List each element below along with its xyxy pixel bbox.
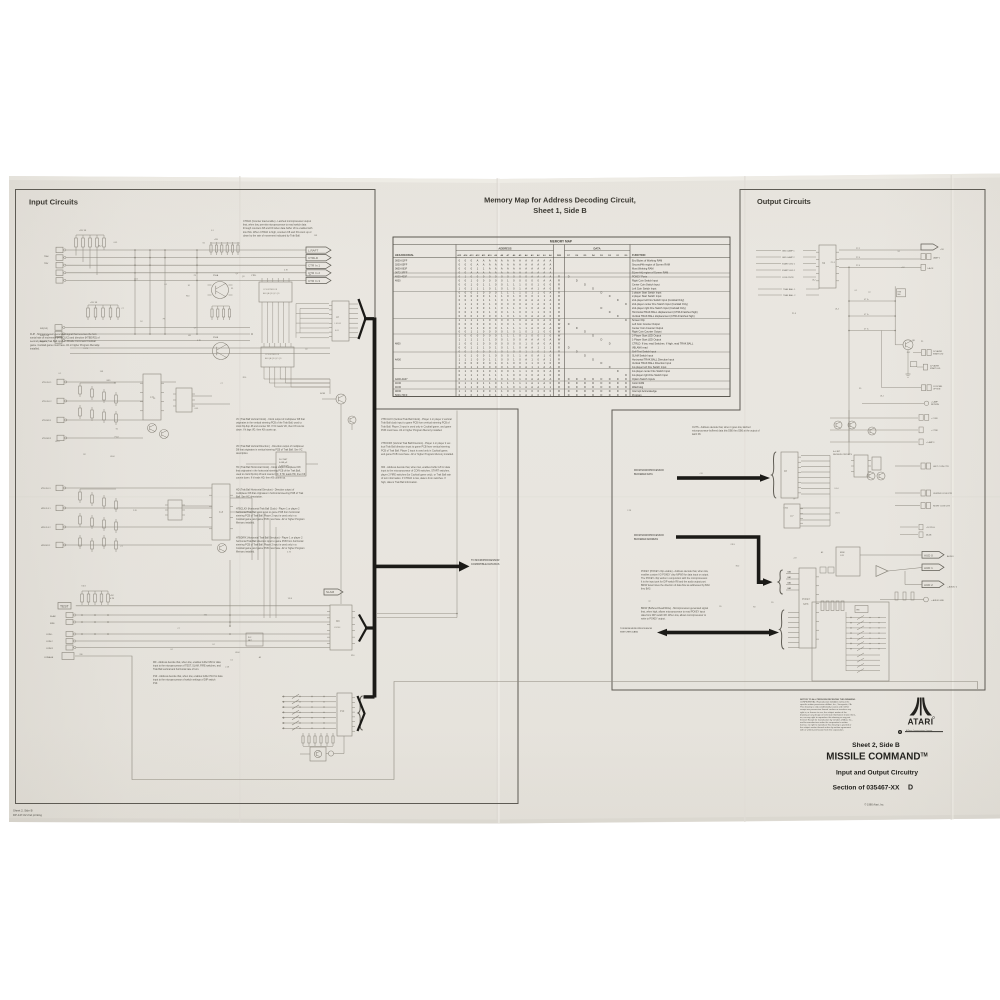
svg-text:D: D <box>609 295 611 298</box>
svg-text:D: D <box>625 382 627 385</box>
svg-text:Interrupt Acknowledge: Interrupt Acknowledge <box>632 390 657 393</box>
svg-text:1-player Start Switch Input: 1-player Start Switch Input <box>632 291 662 294</box>
svg-text:COUNTER K9: COUNTER K9 <box>265 354 280 356</box>
svg-text:P10B: P10B <box>213 337 219 339</box>
svg-text:4A00-4A07: 4A00-4A07 <box>395 378 408 381</box>
svg-text:D: D <box>617 299 619 302</box>
svg-text:4A00: 4A00 <box>395 358 401 361</box>
svg-text:Memory installed.: Memory installed. <box>236 551 255 554</box>
svg-text:D: D <box>592 394 594 397</box>
svg-text:S1: S1 <box>231 288 233 290</box>
svg-text:+5V 1K: +5V 1K <box>90 302 98 304</box>
svg-text:AUD 2: AUD 2 <box>924 583 933 587</box>
svg-text:4D00: 4D00 <box>395 390 402 393</box>
svg-text:0.1: 0.1 <box>59 373 62 375</box>
svg-text:2-Player Start LED Output: 2-Player Start LED Output <box>632 335 661 338</box>
svg-text:D: D <box>625 303 627 306</box>
svg-text:+5V PULL: +5V PULL <box>926 527 936 529</box>
svg-text:2-PLAYER: 2-PLAYER <box>930 365 940 368</box>
svg-text:low ING. When CTRLD is high, c: low ING. When CTRLD is high, counters K8… <box>243 231 312 234</box>
svg-text:on, nor any right to repr: on, nor any right to reproduce this draw… <box>800 716 851 719</box>
svg-text:1st-player right Fire Switch I: 1st-player right Fire Switch Input <box>632 374 668 377</box>
svg-text:R: R <box>558 287 560 290</box>
svg-text:0.1: 0.1 <box>855 290 858 292</box>
svg-text:AUD 1: AUD 1 <box>924 566 933 570</box>
svg-text:D: D <box>617 390 619 393</box>
svg-text:LS244: LS244 <box>334 627 341 629</box>
svg-text:0000-01FF: 0000-01FF <box>395 260 408 263</box>
svg-text:HEXADECIMAL: HEXADECIMAL <box>395 253 414 257</box>
svg-text:Left Coin Switch Input: Left Coin Switch Input <box>632 287 657 290</box>
svg-text:74LS: 74LS <box>288 598 293 600</box>
svg-text:C4: C4 <box>164 284 166 286</box>
svg-text:VTB CLK 1: VTB CLK 1 <box>42 382 51 384</box>
svg-text:R: R <box>558 343 560 346</box>
svg-text:FROM MICROPROCESSOR: FROM MICROPROCESSOR <box>634 535 664 537</box>
svg-text:1-PLAYER: 1-PLAYER <box>933 350 943 353</box>
svg-text:D: D <box>592 378 594 381</box>
svg-text:A3: A3 <box>188 334 190 337</box>
svg-text:down. If it lags VD, then K8 c: down. If it lags VD, then K8 counts up. <box>236 429 277 432</box>
svg-text:R: R <box>558 382 560 385</box>
svg-text:LS74: LS74 <box>835 513 839 515</box>
svg-text:R10: R10 <box>186 295 189 297</box>
svg-text:D: D <box>625 386 627 389</box>
svg-text:J8-2: J8-2 <box>880 395 884 397</box>
svg-text:and game PCB must have -02 or: and game PCB must have -02 or higher Pro… <box>381 453 454 456</box>
svg-text:D: D <box>584 394 586 397</box>
svg-text:CENTER COIN CTR: CENTER COIN CTR <box>933 493 953 495</box>
svg-text:the subject matter thereof: the subject matter thereof unless by wri… <box>800 726 851 729</box>
svg-text:START LED: START LED <box>930 367 941 370</box>
svg-text:zontal rate of movement (HTBCL: zontal rate of movement (HTBCLK2) and di… <box>30 337 100 340</box>
svg-text:VTB CLK 2: VTB CLK 2 <box>42 401 51 403</box>
svg-text:Right Coin Counter Output: Right Coin Counter Output <box>632 331 662 334</box>
svg-text:D: D <box>617 370 619 373</box>
svg-text:P9: P9 <box>194 275 196 277</box>
svg-text:AUDIO: AUDIO <box>947 555 954 558</box>
svg-text:AB QA QB QC QD: AB QA QB QC QD <box>263 292 280 295</box>
svg-text:SLAM: SLAM <box>50 615 56 618</box>
svg-text:LAMP 1: LAMP 1 <box>933 257 941 260</box>
svg-text:Second/4th region of Screen RA: Second/4th region of Screen RAM <box>632 264 670 267</box>
svg-text:Sheet 1, Side B: Sheet 1, Side B <box>533 206 586 215</box>
svg-text:C4: C4 <box>212 644 214 646</box>
svg-text:This drawing is only condi: This drawing is only conditionally issue… <box>800 706 849 709</box>
svg-text:P10A: P10A <box>213 274 219 277</box>
svg-text:PCB must have -02 or higher Pr: PCB must have -02 or higher Program Memo… <box>381 429 443 432</box>
svg-text:GND LAMP 1: GND LAMP 1 <box>782 250 795 253</box>
svg-text:D: D <box>584 354 586 357</box>
svg-text:COIN R: COIN R <box>46 648 54 650</box>
svg-text:D: D <box>576 394 578 397</box>
svg-text:1st-player left Fire Switch In: 1st-player left Fire Switch Input <box>632 366 667 369</box>
svg-text:R: R <box>558 315 560 318</box>
svg-text:R: R <box>558 279 560 282</box>
svg-text:SLAM: SLAM <box>326 590 335 594</box>
svg-text:D: D <box>568 382 570 385</box>
svg-text:A3: A3 <box>259 656 261 659</box>
svg-text:receipt nor possession ther: receipt nor possession thereof confers o… <box>800 708 852 711</box>
svg-text:installed.: installed. <box>30 347 40 350</box>
svg-text:COIN CNTR: COIN CNTR <box>782 277 794 279</box>
svg-text:LS04: LS04 <box>235 652 239 654</box>
svg-text:4×4 BIT: 4×4 BIT <box>833 450 841 453</box>
svg-text:down by the rate of movement i: down by the rate of movement indicated b… <box>243 234 301 237</box>
svg-text:Sheet 2, Side B: Sheet 2, Side B <box>852 742 900 749</box>
svg-text:0.01: 0.01 <box>335 330 339 332</box>
svg-text:D: D <box>584 378 586 381</box>
svg-text:D: D <box>600 339 602 342</box>
svg-text:Trak Ball clock input to game: Trak Ball clock input to game PCB from v… <box>381 422 450 425</box>
svg-text:GND: GND <box>106 380 111 382</box>
svg-text:Horizontal TRAK BALL Direction: Horizontal TRAK BALL Direction Input <box>632 358 674 361</box>
svg-text:D: D <box>617 386 619 389</box>
svg-text:POKEY: POKEY <box>802 598 811 601</box>
svg-text:2nd-player left Fire Switch In: 2nd-player left Fire Switch Input (Cockt… <box>632 299 684 302</box>
svg-text:R: R <box>558 311 560 314</box>
svg-text:player 2 FIRE switches (for Co: player 2 FIRE switches (for Cocktail gam… <box>381 473 452 476</box>
svg-text:R-C NET: R-C NET <box>279 459 288 461</box>
svg-text:D: D <box>625 390 627 393</box>
svg-text:COUNTER K8: COUNTER K8 <box>263 289 278 291</box>
svg-text:Input and Output Circuitry: Input and Output Circuitry <box>836 769 918 776</box>
svg-text:Center Coin Counter Output: Center Coin Counter Output <box>632 327 663 330</box>
svg-text:D: D <box>592 358 594 361</box>
svg-text:+ AUDIO 2: + AUDIO 2 <box>947 586 958 589</box>
svg-text:M9: M9 <box>336 619 340 623</box>
svg-text:input to the microprocessor of: input to the microprocessor of switch se… <box>153 679 216 682</box>
svg-text:J8-2: J8-2 <box>98 245 102 247</box>
svg-text:R: R <box>558 303 560 306</box>
svg-text:DP-147-02 2nd printing: DP-147-02 2nd printing <box>13 813 42 817</box>
svg-text:R10: R10 <box>736 565 739 567</box>
svg-text:4000: 4000 <box>395 279 401 282</box>
svg-text:R: R <box>558 362 560 365</box>
svg-text:tical Trak Ball direction inpu: tical Trak Ball direction input to game … <box>381 446 450 449</box>
svg-text:Q3: Q3 <box>236 273 239 275</box>
svg-text:D: D <box>592 335 594 338</box>
svg-text:2nd-player center Fire Switch: 2nd-player center Fire Switch Input (Coc… <box>632 303 688 306</box>
svg-text:Memory installed.: Memory installed. <box>236 522 255 525</box>
svg-text:0.068 µF: 0.068 µF <box>279 462 288 464</box>
svg-text:D: D <box>625 378 627 381</box>
svg-text:C-R: C-R <box>840 555 844 557</box>
svg-text:COCKTAIL: COCKTAIL <box>933 385 942 388</box>
svg-text:Color RAM: Color RAM <box>632 382 644 385</box>
svg-text:D5: D5 <box>859 388 861 390</box>
svg-text:PCB of Trak Ball. Player 2 inp: PCB of Trak Ball. Player 2 input is used… <box>381 449 448 452</box>
svg-text:D: D <box>568 323 570 326</box>
svg-text:game. Cocktail game must have: game. Cocktail game must have -02 or hig… <box>30 344 100 347</box>
svg-text:TO/FROM MICROPROCESSOR: TO/FROM MICROPROCESSOR <box>620 628 652 630</box>
svg-text:NOTICE TO ALL PERSONS RECEIVIN: NOTICE TO ALL PERSONS RECEIVING THIS DRA… <box>800 698 856 701</box>
svg-text:TBH: TBH <box>44 256 49 258</box>
svg-text:FW(CW): FW(CW) <box>40 328 48 330</box>
svg-text:330: 330 <box>79 654 82 656</box>
svg-text:of turn information. If CTRLD: of turn information. If CTRLD is low, da… <box>381 477 446 480</box>
svg-text:FUNCTION: FUNCTION <box>632 253 646 257</box>
svg-text:microprocessor-buffered data b: microprocessor-buffered data bits DB0 th… <box>692 430 760 433</box>
svg-text:D: D <box>600 378 602 381</box>
svg-text:Center Coin Switch Input: Center Coin Switch Input <box>632 283 660 286</box>
svg-text:4C00: 4C00 <box>395 382 402 385</box>
svg-text:LA-OF: LA-OF <box>928 267 935 270</box>
svg-text:ADDRESS: ADDRESS <box>498 246 511 250</box>
svg-text:M10/: M10/ <box>840 552 845 554</box>
svg-text:Most Working RAM: Most Working RAM <box>632 268 654 271</box>
svg-text:D: D <box>576 327 578 330</box>
svg-text:D: D <box>609 394 611 397</box>
svg-text:D: D <box>609 390 611 393</box>
svg-text:R: R <box>558 390 560 393</box>
svg-text:LS244: LS244 <box>335 323 342 325</box>
svg-text:K-8: K-8 <box>219 510 224 514</box>
svg-text:D: D <box>609 366 611 369</box>
svg-text:LS04: LS04 <box>784 508 788 510</box>
svg-text:TEST: TEST <box>60 605 69 609</box>
svg-text:0.01: 0.01 <box>134 279 138 281</box>
svg-text:counts down. If it leads HD, t: counts down. If it leads HD, then K9 cou… <box>236 477 286 480</box>
svg-text:R: R <box>558 307 560 310</box>
svg-text:P2-8: P2-8 <box>115 436 119 438</box>
svg-text:D: D <box>592 390 594 393</box>
svg-text:LS74: LS74 <box>84 348 88 350</box>
svg-text:BA0: BA0 <box>788 571 792 574</box>
svg-text:D: D <box>568 394 570 397</box>
svg-text:D: D <box>584 283 586 286</box>
svg-text:D: D <box>584 382 586 385</box>
svg-text:C7: C7 <box>194 328 196 330</box>
svg-text:high, data is Trak Ball inform: high, data is Trak Ball information. <box>381 481 418 484</box>
svg-text:P7-4: P7-4 <box>856 257 860 259</box>
svg-text:Horizontal TRAK BALL displacem: Horizontal TRAK BALL displacement (CTRLD… <box>632 311 698 314</box>
svg-text:that, when low, permits microp: that, when low, permits microprocessor t… <box>243 224 307 227</box>
svg-text:R: R <box>558 374 560 377</box>
svg-text:4.7K: 4.7K <box>110 598 115 600</box>
svg-text:FLIP - Microprocessor-generate: FLIP - Microprocessor-generated signal t… <box>30 333 97 336</box>
svg-text:+5V: +5V <box>940 249 944 251</box>
svg-text:BUFFERED ADDRESS: BUFFERED ADDRESS <box>634 538 658 541</box>
svg-text:0.1: 0.1 <box>230 659 233 661</box>
svg-text:C7: C7 <box>121 308 123 310</box>
svg-text:4A 4B: 4A 4B <box>926 534 932 537</box>
svg-text:D: D <box>600 307 602 310</box>
svg-text:S1: S1 <box>188 285 190 287</box>
svg-text:800: 800 <box>898 294 901 296</box>
svg-text:S1: S1 <box>898 251 900 253</box>
svg-text:thru BA3.: thru BA3. <box>641 588 651 591</box>
svg-text:R: R <box>558 347 560 350</box>
svg-text:C4: C4 <box>170 649 172 651</box>
svg-text:through counters K8 and K9 whe: through counters K8 and K9 when data buf… <box>243 227 313 230</box>
svg-text:R: R <box>558 354 560 357</box>
svg-text:330: 330 <box>204 614 207 616</box>
svg-text:Trak Ball. Player 2 input is u: Trak Ball. Player 2 input is used only i… <box>381 425 452 428</box>
svg-text:D: D <box>568 378 570 381</box>
svg-text:HTB DIR 2: HTB DIR 2 <box>41 545 50 547</box>
svg-text:Watchdog: Watchdog <box>632 386 644 389</box>
svg-text:OPTION: OPTION <box>933 389 941 391</box>
svg-text:LS74: LS74 <box>55 441 59 443</box>
svg-text:AB QA QB QC QD: AB QA QB QC QD <box>265 357 282 360</box>
svg-text:MEMORY MAP: MEMORY MAP <box>550 240 573 244</box>
svg-text:R: R <box>558 295 560 298</box>
svg-text:Vertical TRAK BALL displacemen: Vertical TRAK BALL displacement (CTRLD l… <box>632 315 695 318</box>
svg-text:START LED 2: START LED 2 <box>782 269 796 272</box>
svg-text:0600-063F: 0600-063F <box>395 268 408 271</box>
svg-text:Section of 035467-XX: Section of 035467-XX <box>833 784 900 791</box>
svg-text:+ AUDIO GND: + AUDIO GND <box>931 599 945 602</box>
svg-text:GND LAMP 2: GND LAMP 2 <box>782 256 795 259</box>
svg-text:N/P8: N/P8 <box>803 603 809 606</box>
svg-text:CTRLD: CTRLD <box>308 256 319 260</box>
svg-text:Left Coin Counter Output: Left Coin Counter Output <box>632 323 660 326</box>
svg-text:D: D <box>600 291 602 294</box>
svg-text:VTB DIR 1: VTB DIR 1 <box>42 420 51 422</box>
svg-text:write to POKEY output.: write to POKEY output. <box>641 618 666 621</box>
svg-text:R: R <box>558 283 560 286</box>
svg-text:CTR In 1: CTR In 1 <box>308 264 320 268</box>
svg-text:D: D <box>576 390 578 393</box>
svg-text:2nd-player right Fire Switch I: 2nd-player right Fire Switch Input (Cock… <box>632 307 686 310</box>
svg-text:R: R <box>558 366 560 369</box>
svg-text:license, no right to reprod: license, no right to reproduce this draw… <box>800 724 852 727</box>
svg-text:Memory Map for Address Decodin: Memory Map for Address Decoding Circuit, <box>484 195 636 204</box>
svg-text:drawing or any design or techn: drawing or any design or technical infor… <box>800 713 856 716</box>
svg-text:D: D <box>584 331 586 334</box>
svg-text:1-Player Start LED Output: 1-Player Start LED Output <box>632 339 661 342</box>
svg-text:4C00: 4C00 <box>395 386 402 389</box>
svg-text:R: R <box>558 394 560 397</box>
svg-text:J8-2: J8-2 <box>907 352 911 354</box>
svg-text:CTRLD: If low, read Switches.: CTRLD: If low, read Switches. If high, r… <box>632 343 694 346</box>
svg-text:360 - Address decode that, whe: 360 - Address decode that, when low, ena… <box>381 466 451 469</box>
svg-text:thereof. Except for manufactu: thereof. Except for manufacture by vendo… <box>800 718 853 721</box>
svg-text:P1-3: P1-3 <box>831 262 835 264</box>
svg-text:BA1: BA1 <box>788 576 792 579</box>
svg-text:R10: R10 <box>243 377 246 379</box>
svg-text:D: D <box>625 394 627 397</box>
svg-text:latch F8.: latch F8. <box>692 433 702 436</box>
svg-text:Program: Program <box>632 394 642 397</box>
svg-text:D: D <box>617 378 619 381</box>
svg-text:DATA: DATA <box>593 246 600 250</box>
svg-text:D: D <box>568 347 570 350</box>
svg-text:R: R <box>558 370 560 373</box>
svg-text:COINAGE: COINAGE <box>44 656 54 659</box>
svg-text:Vertical TRAK BALL Direction I: Vertical TRAK BALL Direction Input <box>632 362 671 365</box>
svg-text:End Bytes of Working RAM: End Bytes of Working RAM <box>632 260 662 263</box>
svg-text:TBV: TBV <box>44 263 49 265</box>
svg-text:COMPATIBLE DATA BUS: COMPATIBLE DATA BUS <box>471 563 500 566</box>
svg-text:TRAK BALL 1: TRAK BALL 1 <box>783 288 796 291</box>
svg-text:+ COIN: + COIN <box>931 418 938 420</box>
svg-text:D5: D5 <box>771 602 773 604</box>
svg-text:D: D <box>600 386 602 389</box>
svg-text:VTB CLK 3: VTB CLK 3 <box>41 488 50 490</box>
svg-text:Screen Flip: Screen Flip <box>632 319 645 322</box>
svg-text:Trak Ball vertical and horizon: Trak Ball vertical and horizontal rate o… <box>153 668 199 671</box>
svg-text:BA2: BA2 <box>788 582 792 585</box>
svg-text:S1: S1 <box>153 398 155 400</box>
svg-text:2-player Start Switch Input: 2-player Start Switch Input <box>632 295 662 298</box>
svg-text:C7: C7 <box>120 546 122 548</box>
svg-text:D: D <box>617 315 619 318</box>
svg-text:D: D <box>609 311 611 314</box>
svg-text:J8-2: J8-2 <box>812 279 816 281</box>
svg-text:P10: P10 <box>340 710 345 713</box>
svg-text:FIRE: FIRE <box>50 623 55 625</box>
svg-text:and for manufacture under: and for manufacture under the corporatio… <box>800 721 849 724</box>
svg-text:D: D <box>625 319 627 322</box>
svg-text:CTRL: CTRL <box>251 275 257 277</box>
svg-text:R: R <box>558 378 560 381</box>
svg-text:+ CTRK: + CTRK <box>931 430 939 432</box>
svg-text:Output Circuits: Output Circuits <box>757 197 811 206</box>
svg-text:L.RAFT: L.RAFT <box>308 248 319 252</box>
svg-text:START LED 1: START LED 1 <box>782 263 796 266</box>
svg-text:D: D <box>592 287 594 290</box>
svg-text:Q3: Q3 <box>242 276 245 278</box>
svg-text:START LED: START LED <box>933 353 944 356</box>
svg-text:RECEIVE CIRCUITS: RECEIVE CIRCUITS <box>833 454 852 456</box>
svg-text:© 1980 Atari, Inc: © 1980 Atari, Inc <box>864 803 884 807</box>
svg-text:L8-4: L8-4 <box>835 488 839 490</box>
svg-text:D: D <box>625 374 627 377</box>
svg-text:0.01: 0.01 <box>114 242 118 244</box>
svg-text:P9: P9 <box>163 318 165 320</box>
svg-text:HTB CLK 2: HTB CLK 2 <box>41 527 51 529</box>
svg-text:TRAK BALL 2: TRAK BALL 2 <box>783 294 796 297</box>
svg-text:+5V: +5V <box>214 239 218 241</box>
svg-text:L8-4: L8-4 <box>835 308 839 310</box>
svg-text:D: D <box>592 382 594 385</box>
svg-text:D: D <box>600 382 602 385</box>
svg-text:Input Circuits: Input Circuits <box>29 198 78 207</box>
svg-text:BUFFERED DATA: BUFFERED DATA <box>634 473 653 476</box>
svg-text:RIGHT COIN CTR: RIGHT COIN CTR <box>933 506 951 508</box>
svg-text:D5: D5 <box>719 606 721 608</box>
svg-text:P9: P9 <box>921 341 923 343</box>
svg-text:5000-7FFF: 5000-7FFF <box>395 394 408 397</box>
svg-text:SCM: SCM <box>320 393 325 395</box>
svg-text:D: D <box>908 784 913 791</box>
svg-text:+5V 1K: +5V 1K <box>79 230 87 232</box>
svg-text:74LS: 74LS <box>81 585 86 587</box>
svg-text:1st-player center Fire Switch: 1st-player center Fire Switch Input <box>632 370 670 373</box>
svg-text:K8: K8 <box>753 607 755 609</box>
svg-text:C7: C7 <box>177 628 179 630</box>
svg-text:P10.: P10. <box>153 682 158 685</box>
svg-text:second player's Trak Ball inpu: second player's Trak Ball input on Missi… <box>30 340 96 343</box>
svg-text:input to the microprocessor of: input to the microprocessor of COIN swit… <box>381 470 450 473</box>
svg-text:D: D <box>600 362 602 365</box>
svg-text:0.01: 0.01 <box>195 408 199 410</box>
svg-text:description.: description. <box>236 452 249 455</box>
svg-text:with or written permission fro: with or written permission from the corp… <box>800 729 844 732</box>
svg-text:FROM MICROPROCESSOR: FROM MICROPROCESSOR <box>634 470 664 472</box>
svg-text:ATARI: ATARI <box>908 718 934 727</box>
svg-text:R10: R10 <box>351 655 354 657</box>
svg-text:D: D <box>617 394 619 397</box>
svg-text:R2: R2 <box>83 454 85 456</box>
svg-text:RETURN: RETURN <box>931 404 940 406</box>
svg-text:D: D <box>592 386 594 389</box>
svg-text:A3: A3 <box>821 551 823 554</box>
svg-text:Ball. See HC description.: Ball. See HC description. <box>236 496 263 499</box>
svg-text:AUD 0: AUD 0 <box>924 553 933 557</box>
